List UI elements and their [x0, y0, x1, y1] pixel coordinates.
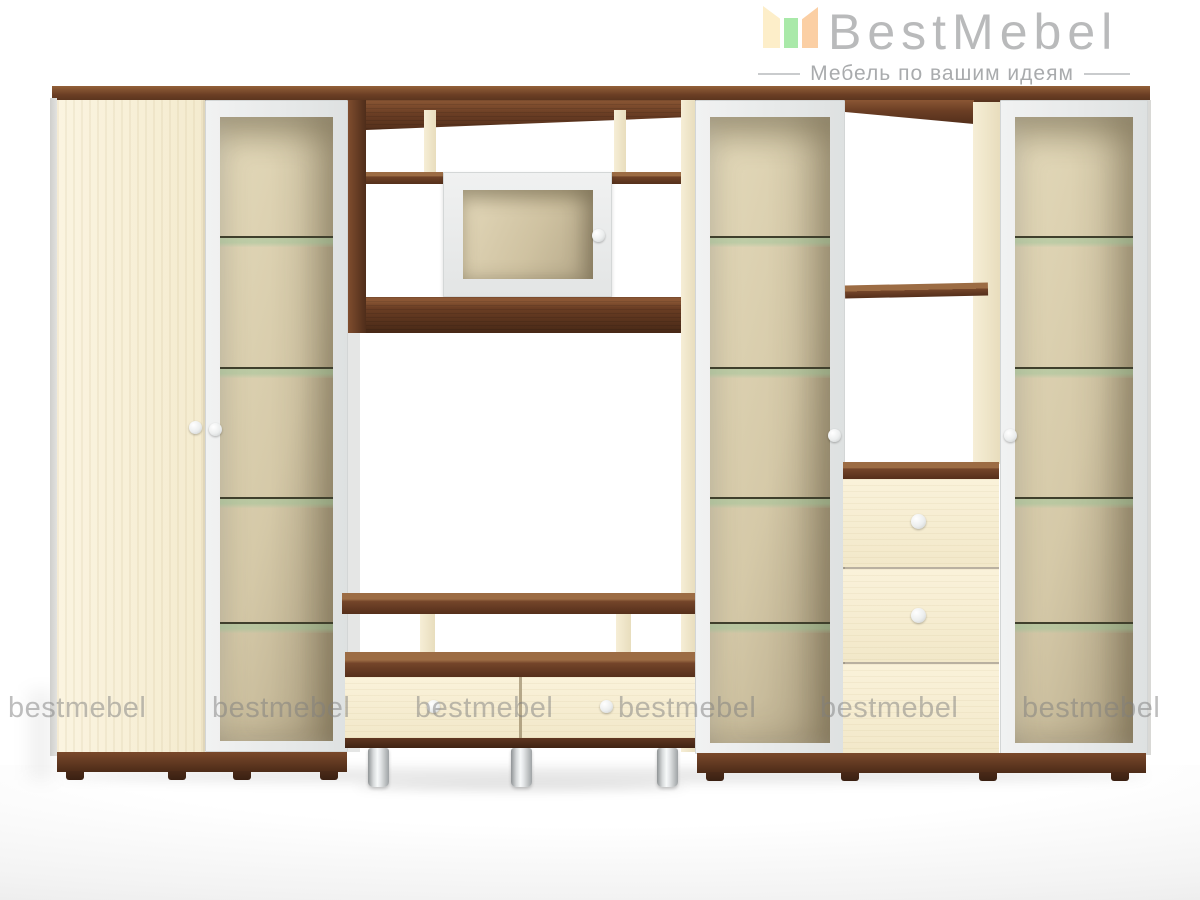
glass-door [1015, 117, 1133, 743]
bench-leg [368, 748, 389, 787]
mini-cabinet-opening [463, 190, 593, 279]
watermark-text: bestmebel [8, 692, 146, 725]
bench-divider [616, 614, 631, 654]
top-shelf-divider [614, 110, 626, 174]
bench-base [345, 738, 695, 748]
glass-door [710, 117, 830, 743]
bench-leg [511, 748, 532, 787]
bench-divider [420, 614, 435, 654]
cabinet-knob [1004, 429, 1017, 442]
glass-shelf [710, 622, 830, 633]
plinth-foot [320, 771, 338, 780]
display-cabinet-right [1000, 100, 1148, 754]
glass-shelf [220, 497, 333, 508]
glass-shelf [710, 236, 830, 247]
plinth-foot [979, 772, 997, 781]
plinth-foot [233, 771, 251, 780]
center-left-wood-panel [348, 100, 366, 333]
center-top-board [366, 100, 681, 130]
niche-top-board [845, 100, 974, 124]
niche-shelf [845, 283, 988, 299]
plinth-left [57, 752, 347, 772]
drawer-unit-top [843, 462, 999, 479]
bench-drawer-knob [600, 700, 613, 713]
product-photo: BestMebel Мебель по вашим идеям [0, 0, 1200, 900]
bench-leg [657, 748, 678, 787]
glass-shelf [1015, 622, 1133, 633]
tv-shelf [342, 593, 698, 614]
tv-beam [366, 297, 681, 333]
wardrobe-knob [189, 421, 202, 434]
plinth-right [697, 753, 1146, 773]
wall-unit [0, 0, 1200, 900]
glass-shelf [1015, 367, 1133, 378]
watermark-text: bestmebel [1022, 692, 1160, 725]
glass-door [220, 117, 333, 741]
drawer-knob [911, 514, 926, 529]
plinth-foot [168, 771, 186, 780]
glass-shelf [220, 236, 333, 247]
top-shelf-divider [424, 110, 436, 174]
cabinet-knob [209, 423, 222, 436]
display-cabinet-middle [695, 100, 845, 754]
glass-shelf [220, 367, 333, 378]
plinth-foot [841, 772, 859, 781]
plinth-foot [66, 771, 84, 780]
glass-shelf [710, 367, 830, 378]
watermark-text: bestmebel [820, 692, 958, 725]
watermark-text: bestmebel [618, 692, 756, 725]
watermark-text: bestmebel [415, 692, 553, 725]
glass-shelf [220, 622, 333, 633]
mini-cabinet-knob [592, 229, 605, 242]
drawer-knob [911, 608, 926, 623]
plinth-foot [1111, 772, 1129, 781]
display-cabinet-left [205, 100, 348, 752]
glass-shelf [1015, 236, 1133, 247]
wall-mini-cabinet [443, 172, 612, 297]
glass-shelf [710, 497, 830, 508]
cabinet-knob [828, 429, 841, 442]
glass-shelf [1015, 497, 1133, 508]
plinth-foot [706, 772, 724, 781]
watermark-text: bestmebel [212, 692, 350, 725]
wardrobe-door [57, 100, 205, 752]
bench-top [345, 652, 695, 677]
left-side-panel [50, 98, 57, 756]
